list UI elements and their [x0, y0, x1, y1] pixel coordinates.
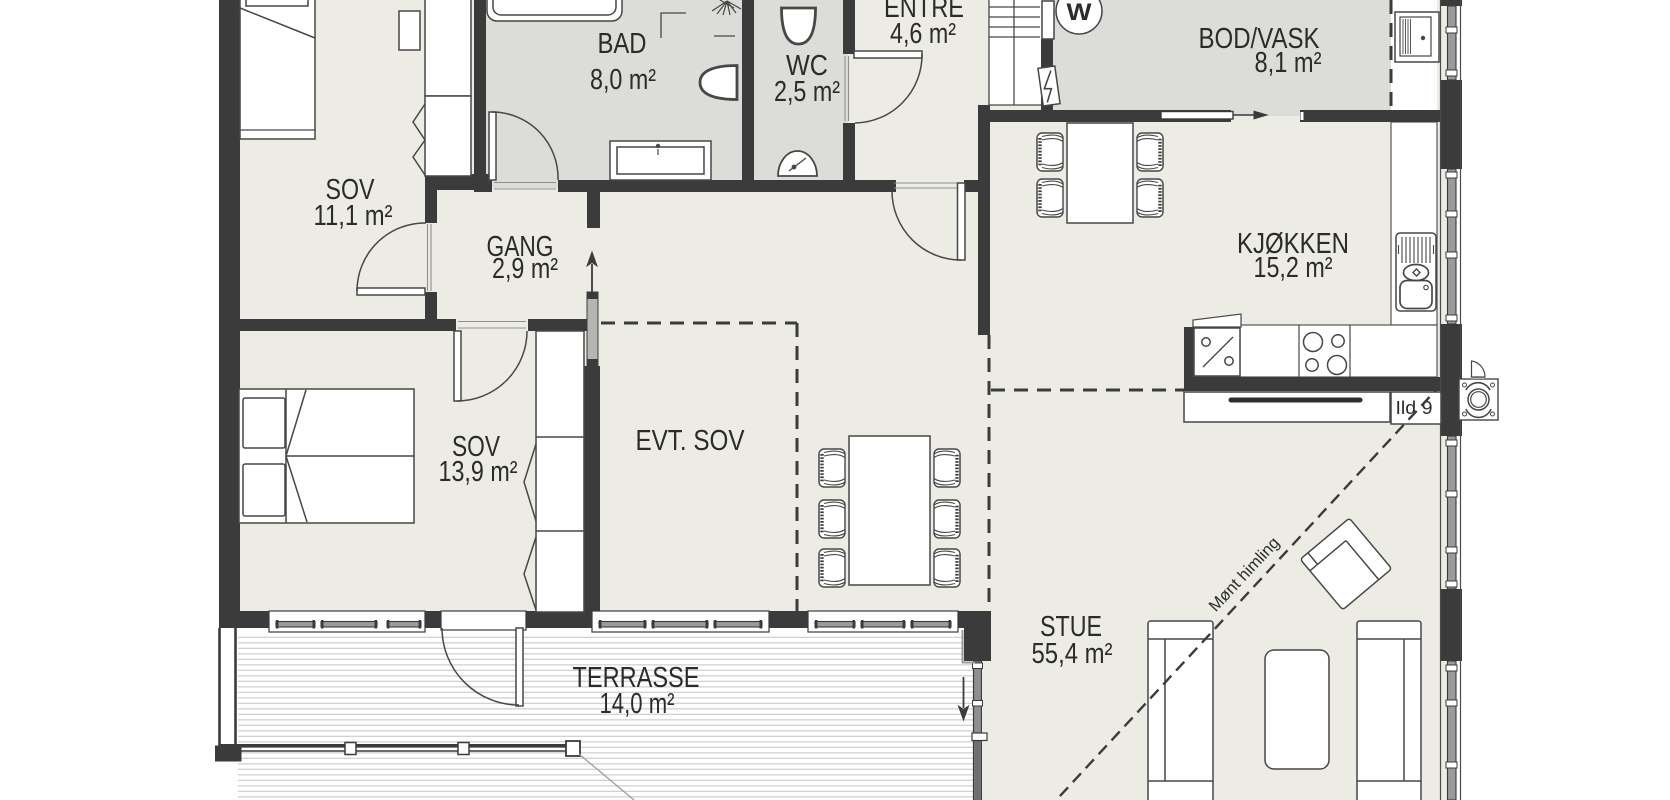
svg-text:4,6 m²: 4,6 m²: [890, 18, 956, 50]
svg-text:55,4 m²: 55,4 m²: [1032, 638, 1113, 670]
svg-text:2,5 m²: 2,5 m²: [774, 76, 840, 108]
svg-text:8,0 m²: 8,0 m²: [590, 64, 656, 96]
svg-text:14,0 m²: 14,0 m²: [600, 688, 675, 720]
svg-text:BAD: BAD: [598, 28, 647, 60]
svg-text:2,9 m²: 2,9 m²: [492, 253, 558, 285]
svg-text:W: W: [1067, 0, 1092, 26]
svg-text:EVT. SOV: EVT. SOV: [636, 425, 746, 457]
svg-text:8,1 m²: 8,1 m²: [1255, 47, 1322, 79]
svg-text:15,2 m²: 15,2 m²: [1254, 252, 1333, 284]
svg-text:11,1 m²: 11,1 m²: [314, 200, 393, 232]
svg-text:13,9 m²: 13,9 m²: [439, 456, 518, 488]
